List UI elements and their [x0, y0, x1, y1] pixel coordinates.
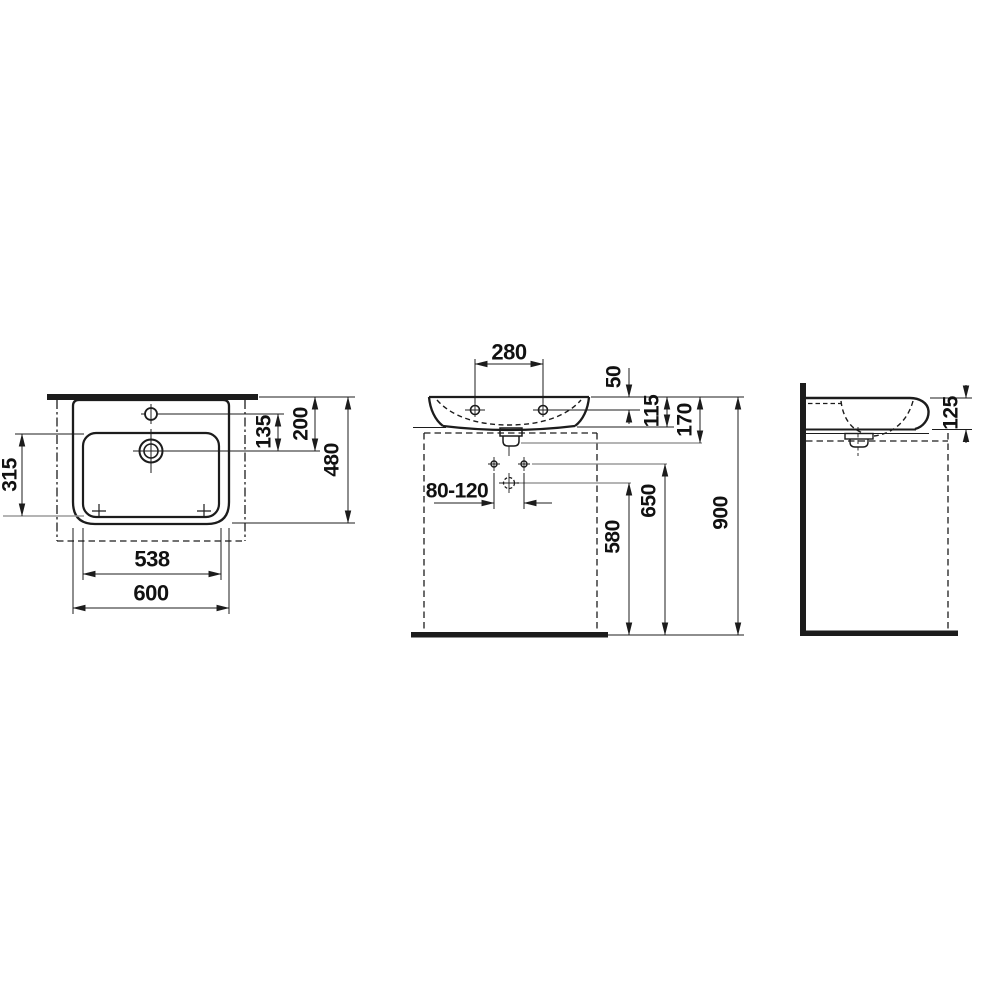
dim-basin-depth: 315 [0, 434, 84, 516]
dim-label-overall-width: 600 [133, 581, 168, 606]
dim-floor-to-inlet: 580 [602, 483, 630, 635]
dim-rim-to-underside: 115 [641, 394, 668, 427]
fixing-holes-front [488, 457, 530, 471]
top-view: 315 135 200 480 538 600 [0, 394, 355, 614]
dim-label-rim-to-underside: 115 [641, 394, 664, 427]
dim-label-rim-to-tap-holes: 50 [603, 366, 626, 388]
dim-floor-to-fixing-holes: 650 [638, 464, 666, 635]
dim-label-rim-to-outlet: 170 [674, 403, 697, 437]
water-inlet-mark [499, 473, 519, 493]
reference-lines-gray [517, 443, 702, 483]
dim-rim-to-tap-holes: 50 [603, 366, 630, 424]
dim-tap-hole-spacing: 280 [475, 340, 543, 404]
drain-trap-front [500, 428, 522, 456]
dim-label-tap-to-drain: 135 [253, 414, 276, 448]
dim-label-floor-to-fixing-holes: 650 [638, 484, 661, 518]
floor-line-side [800, 631, 958, 637]
basin-front-outline [429, 397, 589, 430]
dim-label-front-edge-height: 125 [940, 395, 963, 429]
dim-wall-to-drain: 200 [290, 397, 316, 451]
dim-label-overall-depth: 480 [321, 443, 344, 477]
dim-label-wall-to-drain: 200 [290, 407, 313, 441]
front-view: 280 80-120 [411, 340, 744, 638]
tap-holes-front [465, 403, 640, 417]
basin-side-profile [806, 398, 929, 436]
dim-basin-width: 538 [83, 528, 221, 580]
dim-inlet-offset-range: 80-120 [426, 473, 552, 509]
dim-label-tap-hole-spacing: 280 [491, 340, 526, 365]
dim-label-inlet-offset-range: 80-120 [426, 480, 488, 503]
washbasin-technical-drawing: 315 135 200 480 538 600 [0, 0, 1000, 1000]
dim-label-floor-to-rim: 900 [710, 496, 733, 530]
side-view: 125 [800, 383, 972, 636]
floor-line-front [411, 632, 608, 638]
wall-zone-dashed-front [424, 433, 597, 632]
dim-rim-to-outlet: 170 [674, 397, 701, 443]
wall-line-side [800, 383, 806, 636]
dim-front-edge-height: 125 [930, 385, 972, 443]
dim-label-basin-depth: 315 [0, 457, 22, 491]
dim-floor-to-rim: 900 [710, 397, 739, 635]
dim-label-basin-width: 538 [134, 547, 169, 572]
dim-tap-to-drain: 135 [253, 414, 279, 451]
drawing-canvas: 315 135 200 480 538 600 [0, 0, 1000, 1000]
dim-label-floor-to-inlet: 580 [602, 520, 625, 554]
